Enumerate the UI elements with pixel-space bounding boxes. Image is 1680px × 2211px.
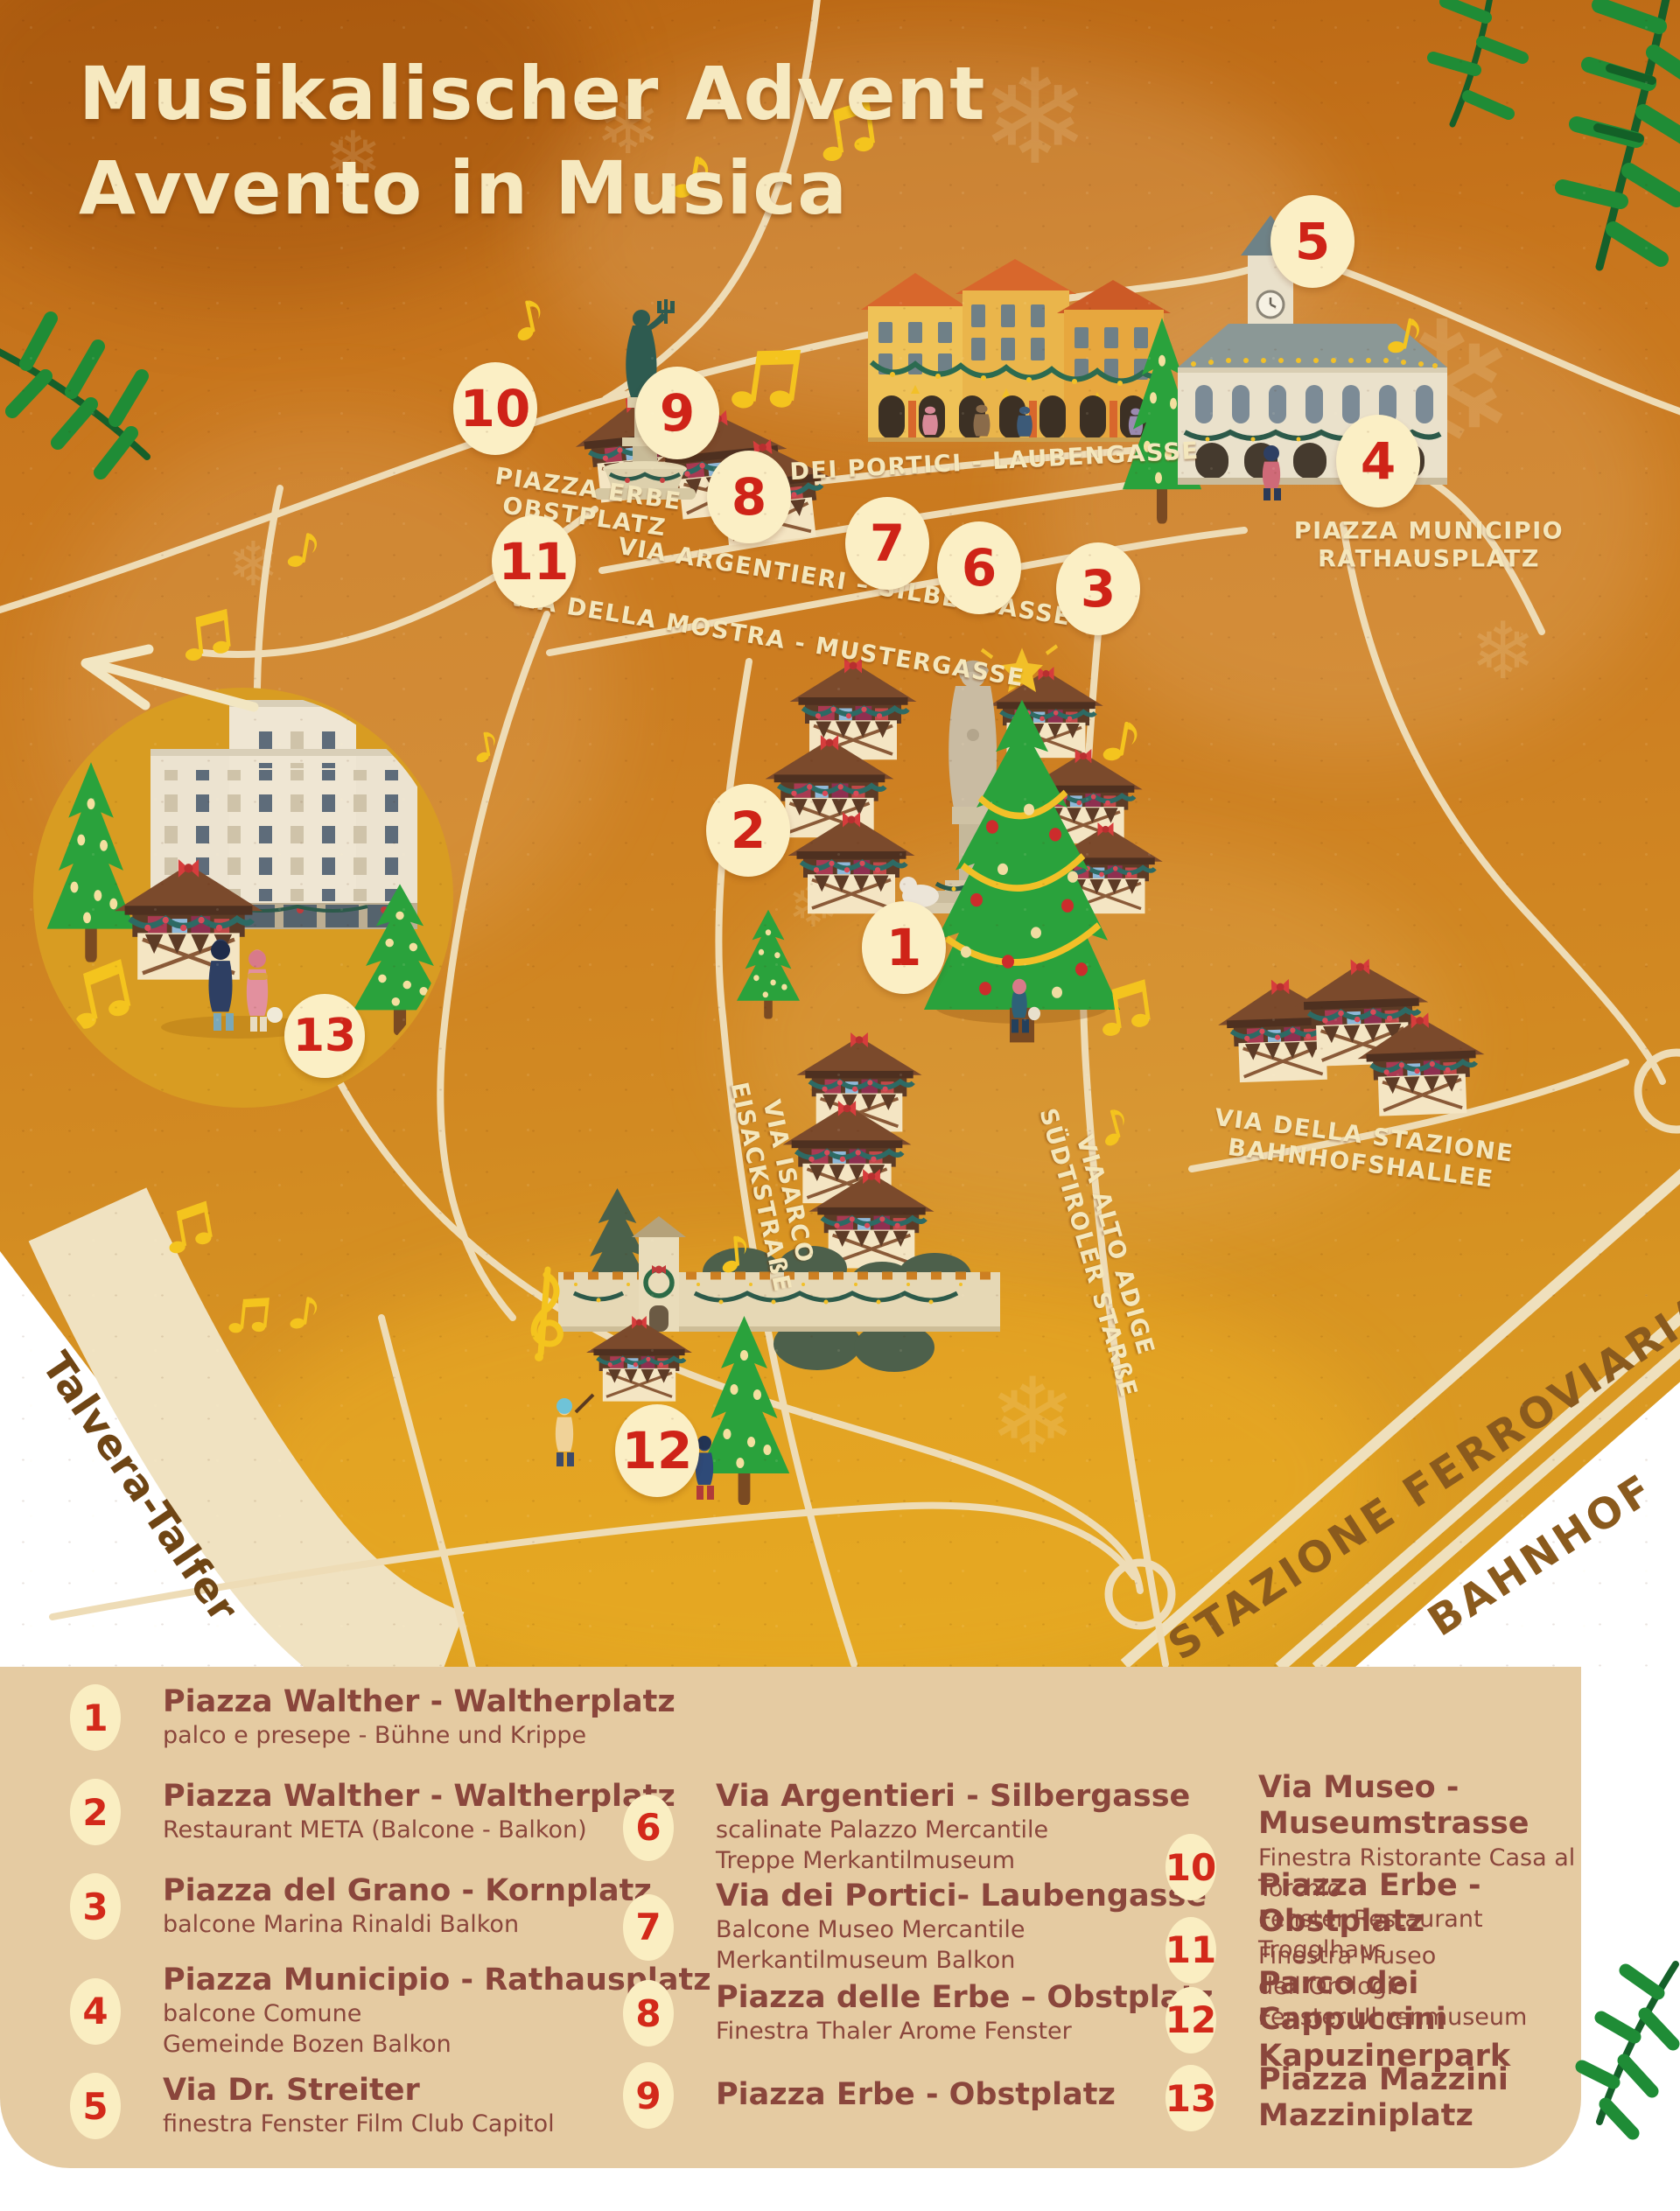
map-marker-12: 12 [615,1404,699,1497]
legend-item-5: 5 Via Dr. Streiterfinestra Fenster Film … [70,2073,555,2139]
map-marker-11: 11 [492,515,576,608]
legend-badge-1: 1 [70,1684,121,1751]
legend-badge-9: 9 [623,2062,674,2129]
map-marker-9: 9 [635,367,719,459]
map-marker-7: 7 [845,497,929,590]
treble-clef-note [534,1270,560,1361]
fir-branch-left [0,318,147,472]
arrow-icon [86,649,254,707]
legend-badge-13: 13 [1165,2065,1216,2131]
legend-item-6: 6 Via Argentieri - Silbergassescalinate … [623,1779,1190,1876]
small-fir [737,910,800,1019]
legend-badge-5: 5 [70,2073,121,2139]
fir-branch [1433,0,1680,267]
legend-item-3: 3 Piazza del Grano - Kornplatzbalcone Ma… [70,1873,652,1940]
advent-map: ❄ ❄ ❄ ❄ ❄ ❄ ❄ ❄ [0,0,1680,1667]
fir-branch-legend [1557,1960,1680,2152]
map-marker-4: 4 [1336,415,1420,507]
street-label-piazza-municipio: PIAZZA MUNICIPIORATHAUSPLATZ [1294,518,1564,575]
legend-badge-6: 6 [623,1795,674,1861]
legend-item-4: 4 Piazza Municipio - Rathausplatzbalcone… [70,1963,711,2060]
map-marker-1: 1 [862,901,946,994]
map-illustration [0,0,1680,1667]
page-title: Musikalischer Advent Avvento in Musica [79,47,985,235]
legend-panel: 1 Piazza Walther - Waltherplatzpalco e p… [0,1667,1581,2168]
map-marker-8: 8 [707,451,791,543]
stalls-walther [766,658,917,913]
portici-building [861,259,1171,442]
legend-badge-2: 2 [70,1779,121,1845]
legend-item-1: 1 Piazza Walther - Waltherplatzpalco e p… [70,1684,675,1751]
legend-item-7: 7 Via dei Portici- LaubengasseBalcone Mu… [623,1879,1207,1976]
legend-item-2: 2 Piazza Walther - WaltherplatzRestauran… [70,1779,675,1845]
legend-badge-8: 8 [623,1980,674,2047]
legend-badge-7: 7 [623,1894,674,1961]
map-marker-6: 6 [937,521,1021,614]
map-marker-5: 5 [1270,195,1354,288]
legend-item-13: 13 Piazza MazziniMazziniplatz [1165,2062,1508,2135]
legend-item-12: 12 Parco dei CappucciniKapuzinerpark [1165,1966,1581,2075]
legend-item-9: 9 Piazza Erbe - Obstplatz [623,2062,1116,2129]
map-marker-2: 2 [706,784,790,877]
stalls-stazione [1216,955,1487,1122]
legend-badge-3: 3 [70,1873,121,1940]
legend-badge-4: 4 [70,1978,121,2045]
map-marker-13: 13 [284,994,365,1078]
legend-badge-12: 12 [1165,1987,1216,2054]
map-marker-10: 10 [453,362,537,455]
legend-item-8: 8 Piazza delle Erbe – ObstplatzFinestra … [623,1980,1214,2047]
map-marker-3: 3 [1056,542,1140,635]
